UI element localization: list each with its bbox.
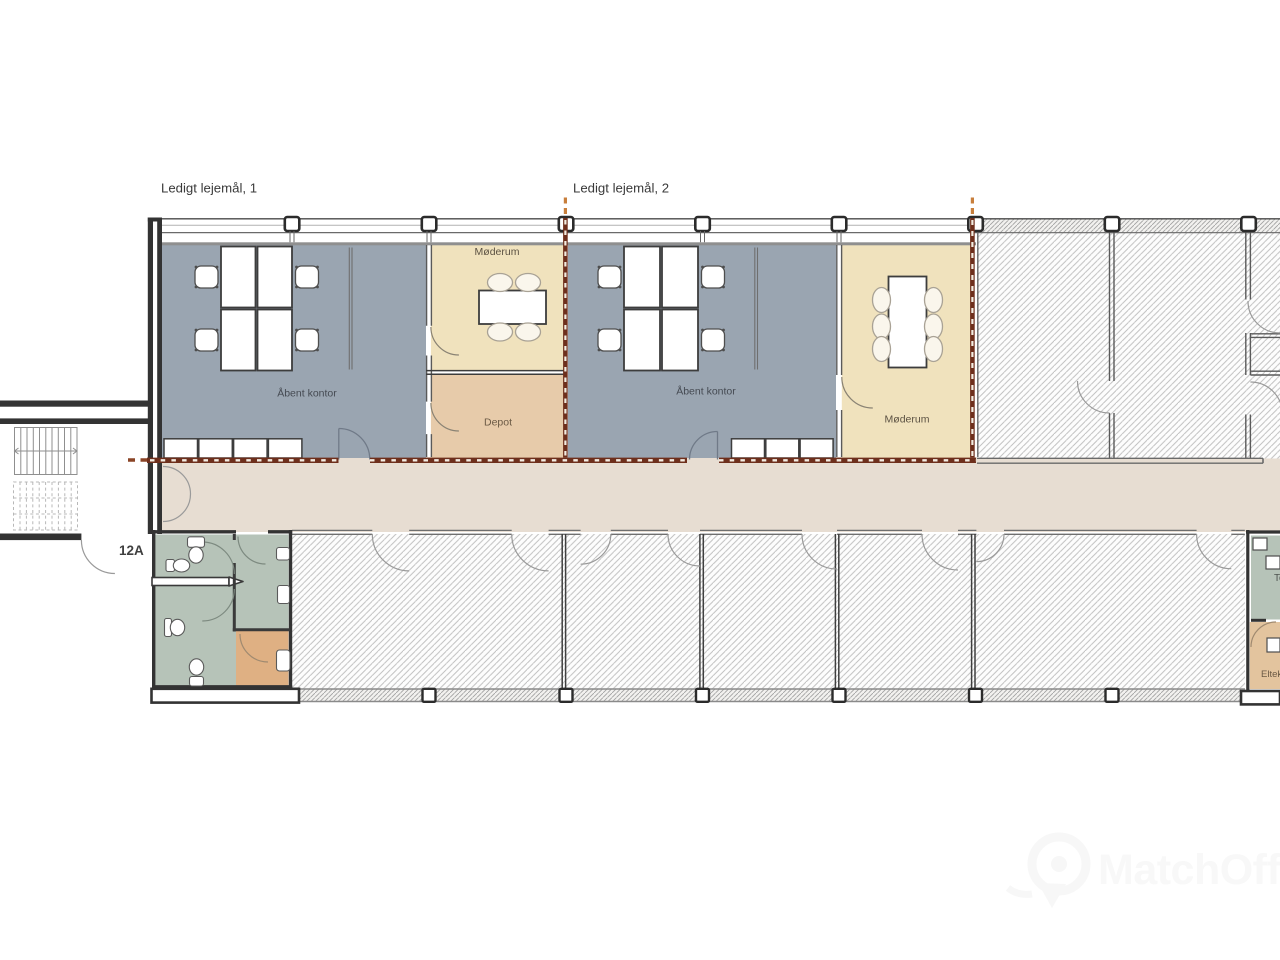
svg-text:Ledigt lejemål, 2: Ledigt lejemål, 2 xyxy=(573,181,669,196)
svg-text:12A: 12A xyxy=(119,543,144,558)
svg-text:Møderum: Møderum xyxy=(885,414,930,426)
svg-text:MatchOffic: MatchOffic xyxy=(1098,846,1280,894)
svg-text:Ledigt lejemål, 1: Ledigt lejemål, 1 xyxy=(161,181,257,196)
svg-text:Åbent kontor: Åbent kontor xyxy=(676,385,736,398)
svg-text:Eltekn: Eltekn xyxy=(1261,669,1280,680)
svg-text:Møderum: Møderum xyxy=(475,246,520,258)
svg-text:Toilet: Toilet xyxy=(1274,573,1280,584)
svg-text:Åbent kontor: Åbent kontor xyxy=(277,387,337,400)
svg-text:Depot: Depot xyxy=(484,417,512,429)
